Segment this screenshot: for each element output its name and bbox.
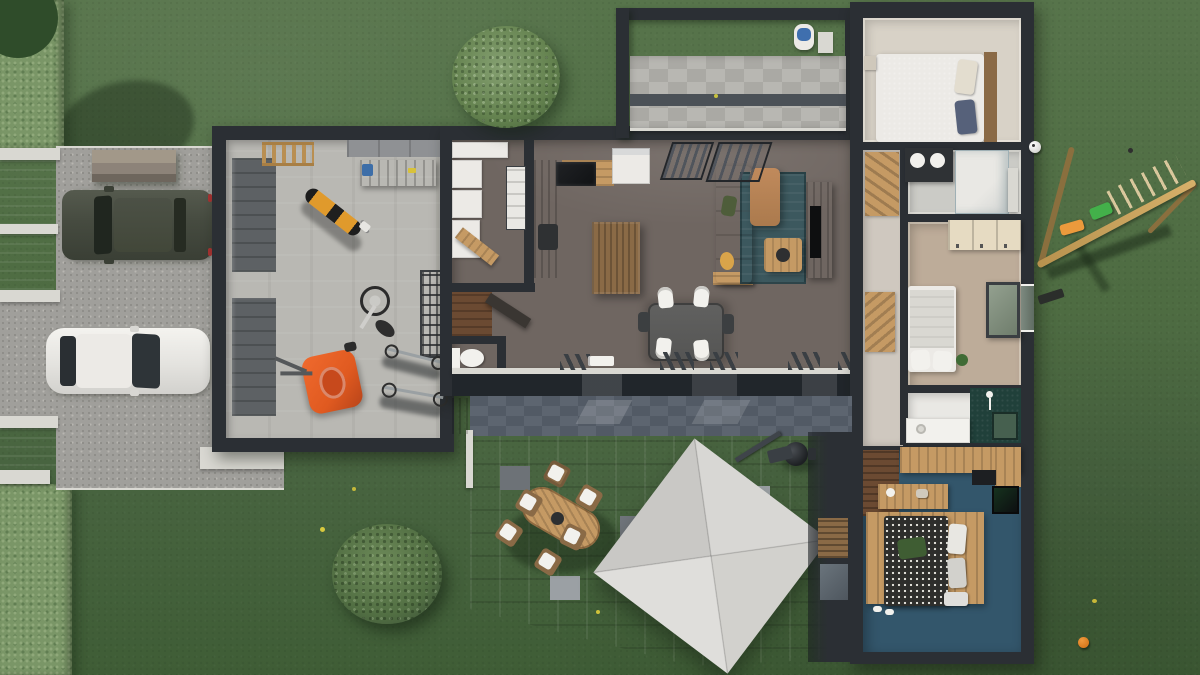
walk-in-shower (955, 150, 1009, 214)
open-door-slats-3 (710, 352, 738, 370)
storage-bins-shelf (506, 166, 526, 230)
car-mirror-bottom (130, 390, 139, 396)
outdoor-table-bowl (551, 512, 564, 525)
mower-handle-2 (280, 371, 312, 375)
nightstand-1 (864, 56, 876, 70)
sliding-door-glass-band (452, 374, 852, 396)
garage-door-1 (232, 158, 276, 272)
utility-top-cabinet (452, 142, 508, 158)
bedroom-2-plant (956, 354, 968, 366)
terrace-slate-band (470, 396, 852, 436)
screen-glass-window (820, 564, 848, 600)
round-bush-top (452, 26, 560, 128)
car-roof (76, 334, 132, 388)
corridor-closet (865, 292, 895, 352)
bed-1-pillow-b (954, 99, 977, 135)
yellow-flower-4 (352, 487, 356, 491)
walkway-edge (630, 128, 846, 131)
dryer (452, 190, 482, 218)
robot-mower-top (797, 28, 811, 41)
pergola-beam-top (616, 8, 856, 20)
yellow-leaf-1 (1092, 599, 1097, 603)
decor-candles (588, 356, 614, 366)
toilet-tank (452, 348, 460, 368)
bed-1-duvet (882, 56, 956, 140)
soccer-ball-patch (1032, 144, 1035, 147)
soccer-ball (1029, 141, 1041, 153)
orange-ball (1078, 637, 1089, 648)
fence-rail-lower-bottom (0, 470, 50, 484)
entry-wardrobe (865, 152, 899, 216)
master-bench (944, 592, 968, 606)
suv-windshield (94, 195, 112, 254)
yellow-flower-2 (596, 610, 600, 614)
yellow-flower-3 (714, 94, 718, 98)
gate-post-top (0, 148, 60, 160)
kitchen-island (592, 222, 640, 294)
fence-panel-lower (0, 428, 56, 470)
slipper-2 (885, 609, 894, 615)
washer (452, 160, 482, 188)
leaning-mirror (986, 282, 1020, 338)
bed-1-headboard (984, 52, 997, 144)
basin-2 (930, 153, 945, 168)
shower-head (986, 391, 993, 398)
suv-rear-window (174, 198, 186, 252)
front-walkway (630, 56, 846, 130)
suv-roof (114, 198, 172, 252)
swing-bracket (1128, 148, 1133, 153)
basin-1 (910, 153, 925, 168)
bathroom-1-door (1008, 168, 1018, 212)
garage-back-door (452, 398, 468, 434)
dining-chair-1 (657, 286, 674, 308)
garage-door-2 (232, 298, 276, 416)
doormat (818, 32, 833, 53)
gate-post-mid (0, 224, 58, 234)
hedge-bottom-left (0, 484, 72, 675)
utility-wall-bottom (443, 283, 535, 292)
bed-2-pillow-a (910, 349, 931, 371)
workbench-tool (408, 168, 416, 173)
dresser-decor-2 (916, 489, 928, 498)
bedroom-2-window (1021, 284, 1034, 332)
bed-2-pillow-b (932, 350, 952, 371)
shower-pipe (989, 398, 991, 410)
dresser-decor-1 (886, 488, 895, 497)
mower-wheel (344, 341, 358, 352)
wc-wall-top (443, 336, 505, 344)
dining-chair-2 (693, 285, 710, 307)
suv-dark (62, 188, 214, 264)
master-bed-duvet (884, 516, 948, 606)
master-unit-niche (972, 470, 996, 485)
closet-handle-2 (980, 244, 983, 248)
storage-box (92, 150, 176, 182)
wall-ladder (262, 142, 314, 166)
corridor-wall (900, 142, 908, 445)
gate-panel-2 (0, 234, 54, 290)
fridge (612, 148, 650, 184)
gate-panel-1 (0, 160, 56, 224)
dining-chair-4 (693, 339, 710, 361)
open-door-slats-4 (788, 352, 820, 370)
slipper-1 (873, 606, 882, 612)
kitchen-sink (538, 224, 558, 250)
open-door-slats-2 (660, 352, 694, 370)
tv (810, 206, 821, 258)
round-bush-bottom (332, 524, 442, 624)
master-unit-extension (995, 447, 1021, 487)
master-pillow-a (947, 523, 968, 554)
master-pillow-b (947, 557, 967, 588)
fallen-bike-wheel-1 (360, 286, 390, 316)
pergola-beam-left (616, 8, 629, 138)
bathroom-2-sink (916, 424, 926, 434)
walkway-dark-band (630, 94, 846, 106)
master-bed-throw (897, 536, 928, 560)
coffee-table-tray (776, 248, 790, 262)
suv-mirror-bottom (104, 258, 114, 264)
fence-rail-lower-top (0, 416, 58, 428)
master-wall-tv (992, 486, 1019, 514)
car-rear-window (60, 336, 76, 386)
workbench-blue-toolbox (362, 164, 373, 176)
bed-2-duvet (910, 290, 954, 348)
closet-handle-3 (1004, 244, 1007, 248)
gate-post-bottom (0, 290, 60, 302)
cooktop (556, 162, 596, 186)
car-windshield (132, 333, 160, 388)
yellow-flower-1 (320, 527, 325, 532)
toilet-bowl (460, 349, 484, 367)
terrace-step-edge (466, 430, 473, 488)
suv-mirror-top (104, 186, 114, 192)
open-door-slats-1 (560, 354, 590, 370)
car-white (46, 328, 212, 398)
light-tile-1 (550, 576, 580, 600)
car-mirror-top (130, 326, 139, 332)
screen-louver-window (818, 518, 848, 558)
dining-chair-dark-1 (638, 312, 650, 332)
floorplan-render (0, 0, 1200, 675)
closet-handle-1 (956, 244, 959, 248)
dining-chair-dark-2 (722, 314, 734, 334)
garage-storage-panels (347, 140, 440, 157)
bathroom-2-niche (992, 412, 1018, 440)
dark-tile-1 (500, 466, 530, 490)
